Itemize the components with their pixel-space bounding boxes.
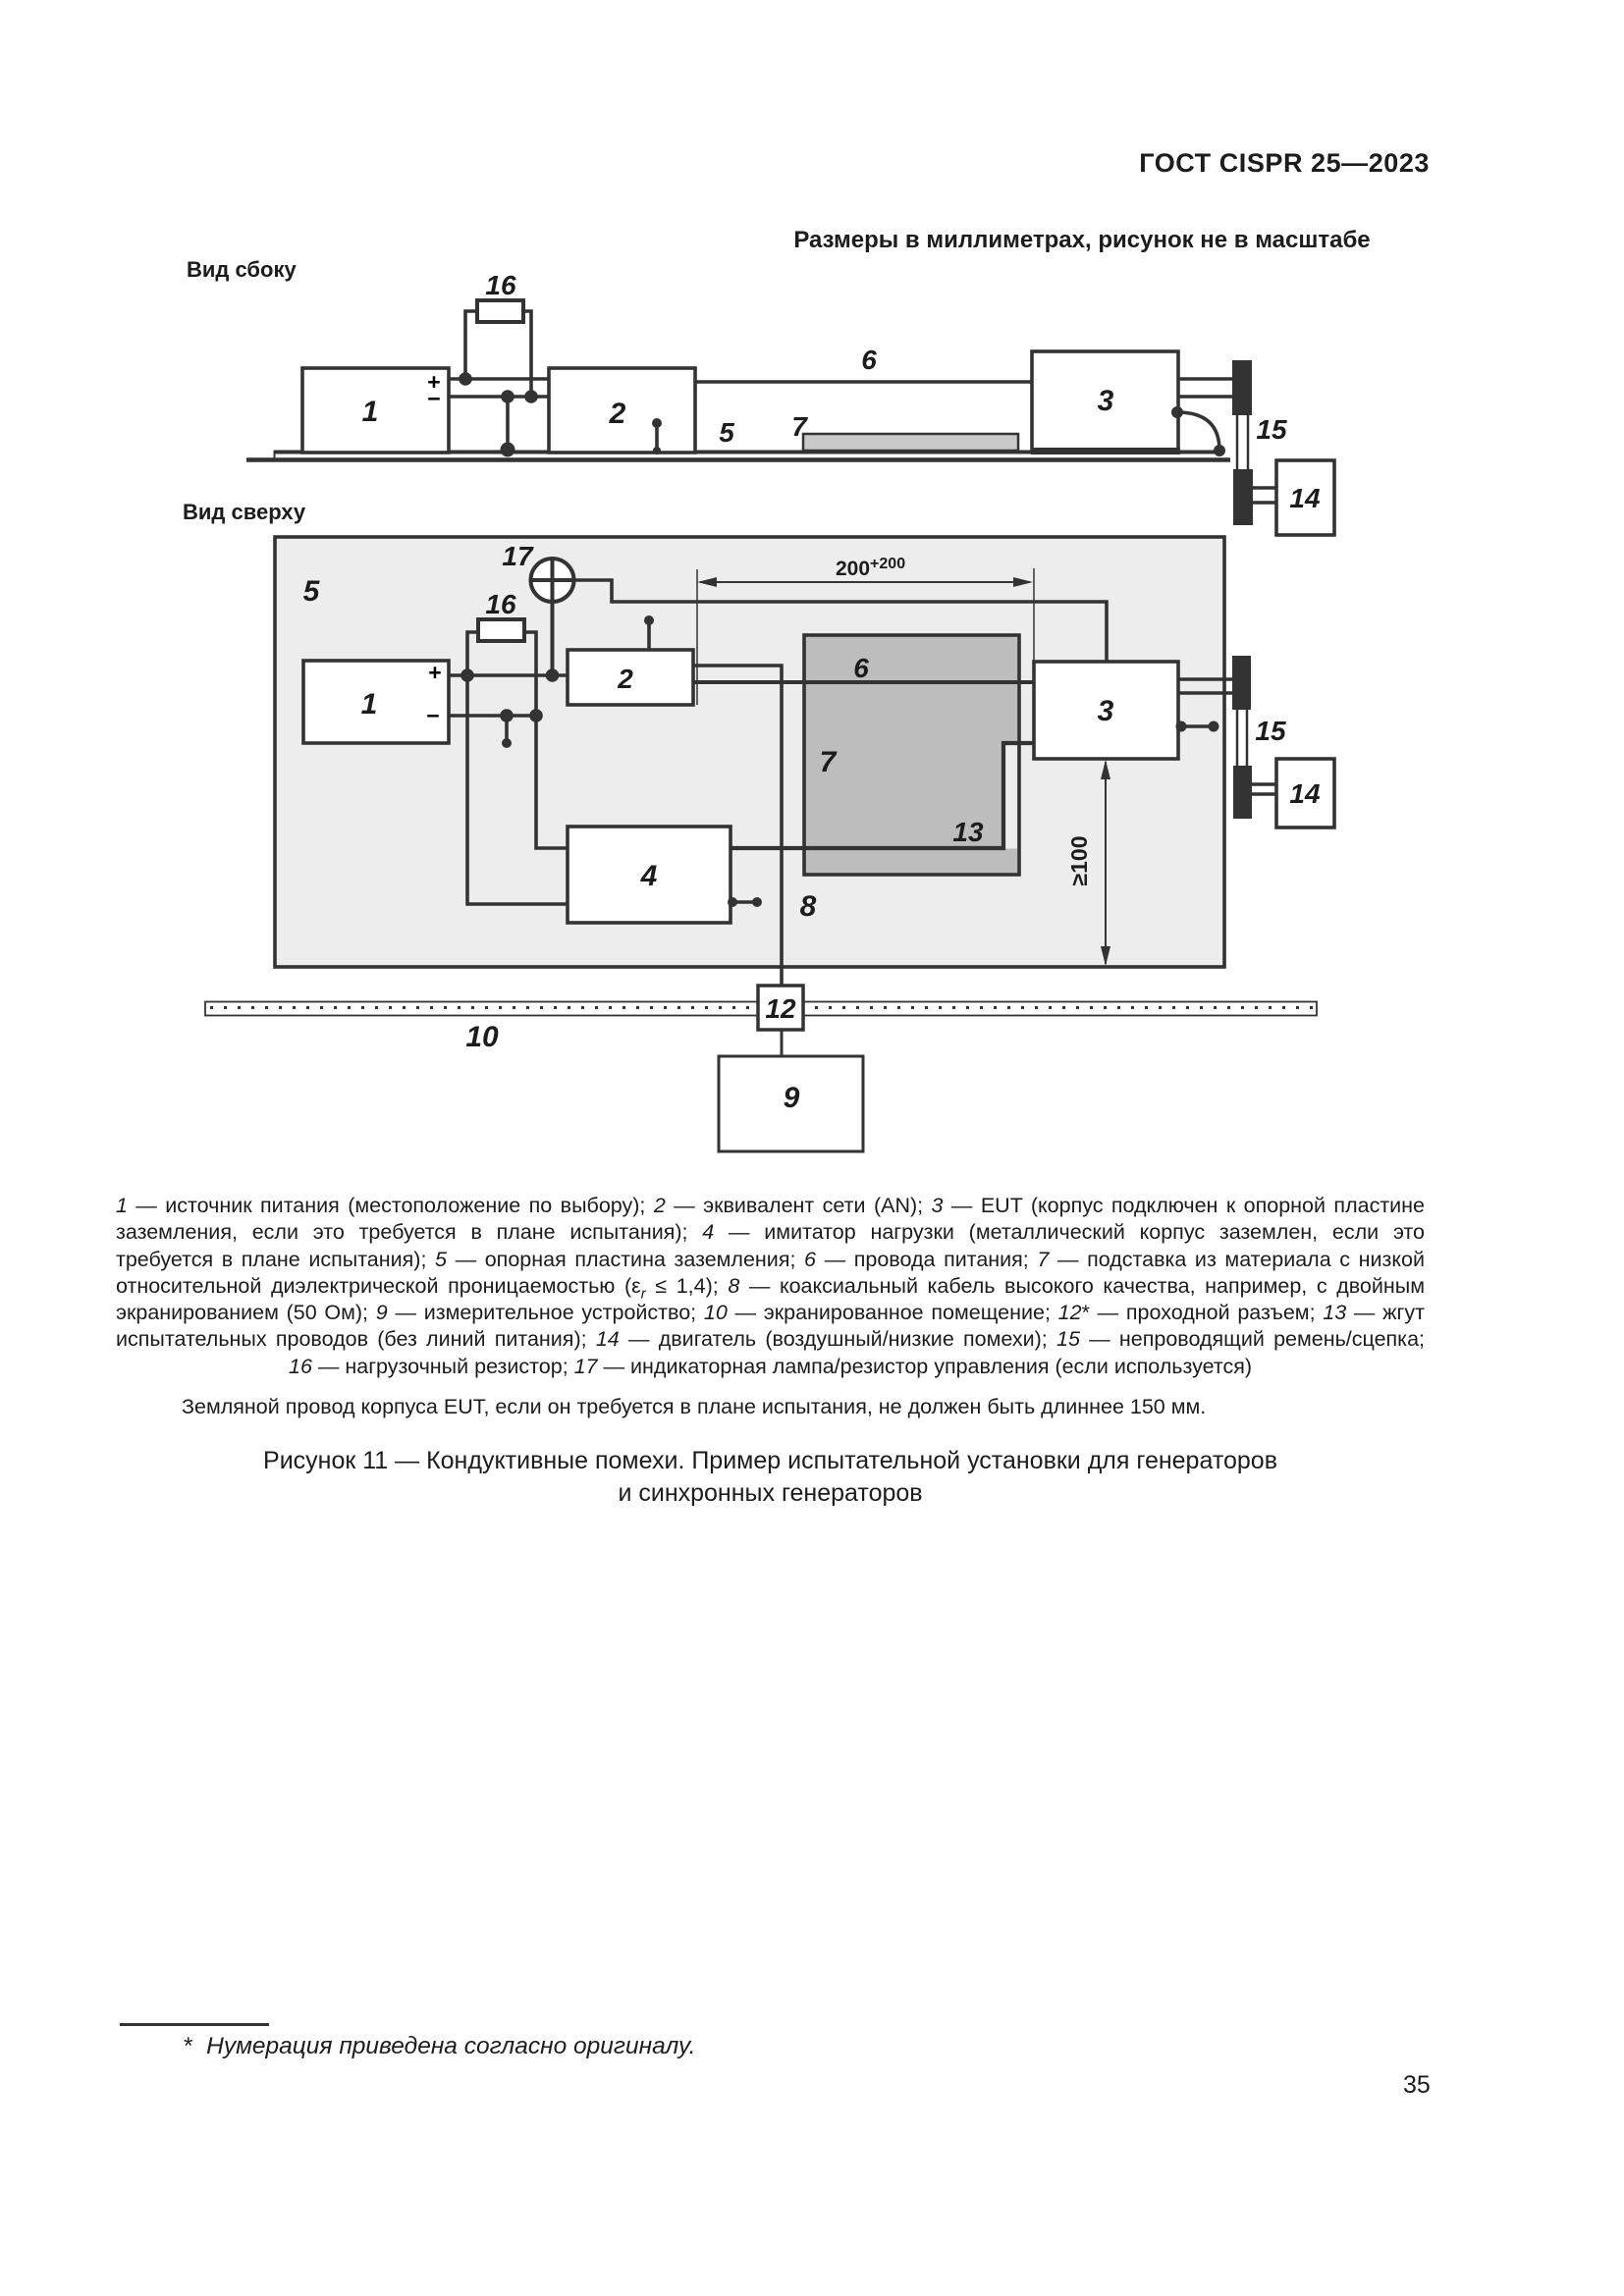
svg-text:15: 15	[1255, 716, 1286, 746]
svg-text:7: 7	[820, 746, 838, 778]
svg-text:3: 3	[1098, 385, 1114, 417]
svg-text:1: 1	[362, 396, 379, 428]
svg-text:16: 16	[485, 270, 516, 300]
svg-text:+: +	[428, 660, 441, 685]
svg-text:−: −	[427, 386, 440, 411]
svg-text:7: 7	[791, 411, 808, 442]
svg-text:14: 14	[1289, 778, 1321, 809]
svg-text:8: 8	[800, 890, 817, 923]
svg-text:3: 3	[1098, 695, 1114, 727]
svg-text:≥100: ≥100	[1066, 836, 1092, 886]
svg-text:4: 4	[640, 860, 658, 892]
svg-text:12: 12	[765, 993, 796, 1024]
svg-text:−: −	[426, 703, 439, 728]
svg-text:5: 5	[719, 417, 734, 448]
svg-text:16: 16	[485, 589, 516, 619]
svg-text:1: 1	[361, 688, 378, 721]
svg-text:6: 6	[853, 653, 869, 683]
svg-text:6: 6	[861, 345, 877, 375]
svg-text:17: 17	[502, 541, 534, 571]
svg-text:9: 9	[784, 1082, 800, 1114]
svg-text:10: 10	[465, 1021, 499, 1053]
svg-text:2: 2	[617, 664, 633, 694]
svg-text:2: 2	[609, 398, 626, 430]
svg-text:13: 13	[952, 817, 984, 847]
svg-text:5: 5	[303, 575, 321, 608]
svg-text:14: 14	[1289, 483, 1321, 513]
svg-text:15: 15	[1256, 414, 1287, 445]
